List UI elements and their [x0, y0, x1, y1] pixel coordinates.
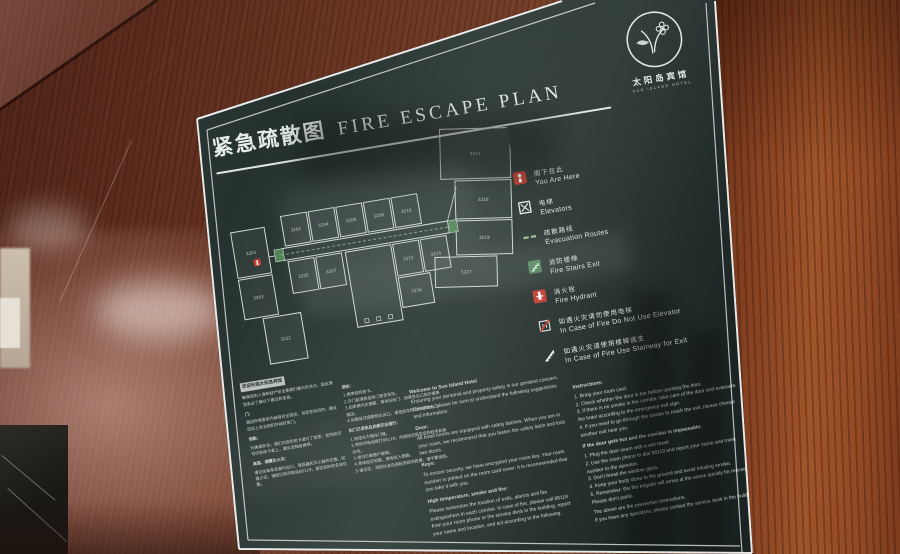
- fire-hydrant-icon: [532, 289, 547, 304]
- svg-text:3219: 3219: [479, 235, 490, 240]
- svg-text:3218: 3218: [478, 197, 489, 202]
- light-highlight: [95, 280, 225, 340]
- svg-text:3227: 3227: [461, 269, 472, 274]
- floor-shadow: [0, 500, 260, 554]
- elevator-icon: [517, 200, 532, 215]
- background-object: [0, 298, 20, 348]
- floor-plan-svg: 3213321832193227320132033202320432063208…: [209, 116, 540, 378]
- info-column-en-welcome: Welcome to Sun Island Hotel Ensuring you…: [408, 361, 582, 542]
- info-column-zh-welcome: 欢迎光临太阳岛宾馆 确保您的人身和财产安全是我们最大的关注，因此请您务必了解以下…: [239, 368, 350, 492]
- light-highlight-small: [8, 205, 88, 250]
- info-column-en-instructions: Instructions: 1. Bring your room card. 2…: [572, 353, 762, 528]
- you-are-here-icon: [512, 170, 527, 185]
- dashed-route-icon: [522, 230, 537, 245]
- no-elevator-icon: [537, 318, 552, 333]
- logo-emblem-icon: [619, 4, 690, 75]
- hotel-logo: 太阳岛宾馆 SUN ISLAND HOTEL: [604, 1, 708, 96]
- svg-text:3213: 3213: [470, 151, 481, 156]
- photo-scene: 紧急疏散图 FIRE ESCAPE PLAN 太阳岛宾馆 S: [0, 0, 900, 554]
- fire-stairs-icon: [527, 259, 542, 274]
